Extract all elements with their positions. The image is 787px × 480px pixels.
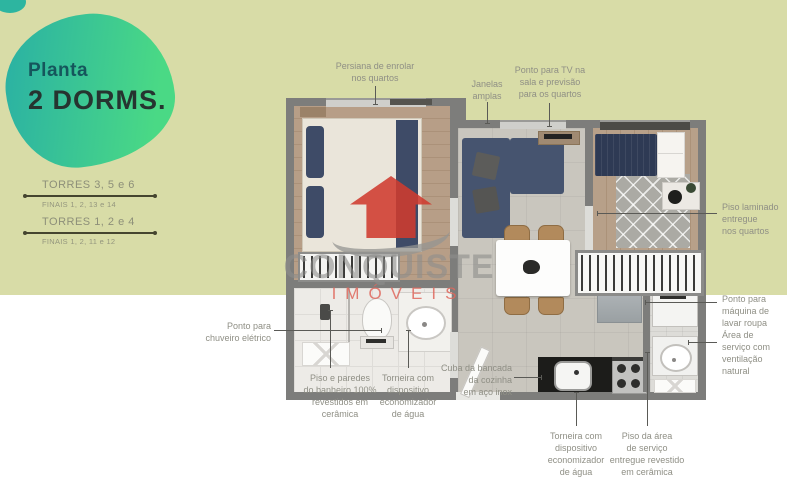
finals-label: FINAIS 1, 2, 11 e 12 — [42, 237, 155, 246]
living-room-window — [500, 120, 566, 129]
annotation-bathroom-ceramic: Piso e paredes do banheiro 100% revestid… — [300, 372, 380, 420]
towers-label: TORRES 3, 5 e 6 — [42, 179, 155, 191]
kitchen-sink — [554, 361, 592, 391]
plan-heading: Planta 2 DORMS. — [28, 60, 167, 116]
leader-line — [647, 352, 648, 426]
stove-knobs — [612, 357, 645, 361]
table-centerpiece — [523, 260, 540, 274]
annotation-washing-machine-point: Ponto para máquina de lavar roupa — [722, 293, 787, 329]
desk-chair — [668, 190, 682, 204]
finals-label: FINAIS 1, 2, 13 e 14 — [42, 200, 155, 209]
legend-row: TORRES 1, 2 e 4 FINAIS 1, 2, 11 e 12 — [25, 216, 155, 246]
plant — [686, 183, 696, 193]
kitchen-faucet — [574, 370, 579, 375]
stove-burner — [631, 364, 640, 373]
stove — [612, 357, 647, 394]
towers-label: TORRES 1, 2 e 4 — [42, 216, 155, 228]
sofa-cushion — [472, 152, 500, 180]
annotation-laminate-floor: Piso laminado entregue nos quartos — [722, 201, 787, 237]
shower-head — [320, 304, 330, 320]
leader-line — [576, 392, 577, 426]
sofa-chaise — [510, 138, 564, 194]
stove-burner — [631, 379, 640, 388]
legend-divider-line — [25, 232, 155, 234]
legend-divider-line — [25, 195, 155, 197]
bed-pillow — [657, 132, 685, 178]
plan-title: 2 DORMS. — [28, 85, 167, 116]
annotation-service-ceramic-floor: Piso da área de serviço entregue revesti… — [604, 430, 690, 478]
annotation-service-area: Área de serviço com ventilação natural — [722, 329, 786, 377]
floor-plan-page: Planta 2 DORMS. TORRES 3, 5 e 6 FINAIS 1… — [0, 0, 787, 480]
leader-line — [645, 302, 717, 303]
leader-line — [408, 330, 409, 368]
dining-chair — [538, 297, 564, 315]
laundry-tank-basin — [660, 344, 692, 372]
bedroom-1-door-opening — [450, 198, 458, 246]
leader-line — [688, 342, 717, 343]
laundry-faucet — [672, 358, 676, 362]
leader-line — [514, 377, 542, 378]
bed-pillow — [306, 126, 324, 178]
annotation-kitchen-sink: Cuba da bancada da cozinha em aço inox — [440, 362, 512, 398]
hanging-clothes — [581, 255, 698, 291]
service-mat — [654, 379, 696, 393]
dining-chair — [504, 297, 530, 315]
single-bed — [595, 134, 657, 176]
annotation-bathroom-faucet: Torneira com dispositivo economizador de… — [372, 372, 444, 420]
sofa-cushion — [472, 186, 500, 214]
annotation-kitchen-faucet: Torneira com dispositivo economizador de… — [540, 430, 612, 478]
leader-line — [274, 330, 382, 331]
legend-row: TORRES 3, 5 e 6 FINAIS 1, 2, 13 e 14 — [25, 179, 155, 209]
plan-kicker: Planta — [28, 60, 167, 82]
leader-line — [597, 213, 717, 214]
towers-legend: TORRES 3, 5 e 6 FINAIS 1, 2, 13 e 14 TOR… — [25, 179, 155, 246]
annotation-roller-blind: Persiana de enrolar nos quartos — [312, 60, 438, 84]
bathroom-faucet — [422, 322, 427, 327]
leader-line — [330, 310, 331, 368]
toilet-seat — [366, 339, 386, 343]
tv — [544, 134, 572, 139]
leader-line — [487, 102, 488, 124]
bedroom-2-wardrobe — [575, 250, 704, 296]
bath-mat — [302, 342, 350, 366]
leader-line — [549, 103, 550, 127]
bedroom-2-door-opening — [585, 206, 593, 250]
bed-pillow — [306, 186, 324, 238]
nightstand — [300, 107, 326, 117]
leader-line — [375, 86, 376, 105]
annotation-electric-shower-point: Ponto para chuveiro elétrico — [195, 320, 271, 344]
bedroom-2-roller-blind — [600, 120, 690, 130]
annotation-tv-point: Ponto para TV na sala e previsão para os… — [505, 64, 595, 100]
bedroom-1-roller-blind — [390, 99, 432, 105]
stove-burner — [617, 379, 626, 388]
watermark-subtitle: IMÓVEIS — [296, 284, 492, 304]
toilet — [362, 298, 392, 340]
bed-pillow-divider — [657, 153, 683, 154]
watermark-brand: CONQUISTE — [272, 248, 506, 287]
stove-burner — [617, 364, 626, 373]
